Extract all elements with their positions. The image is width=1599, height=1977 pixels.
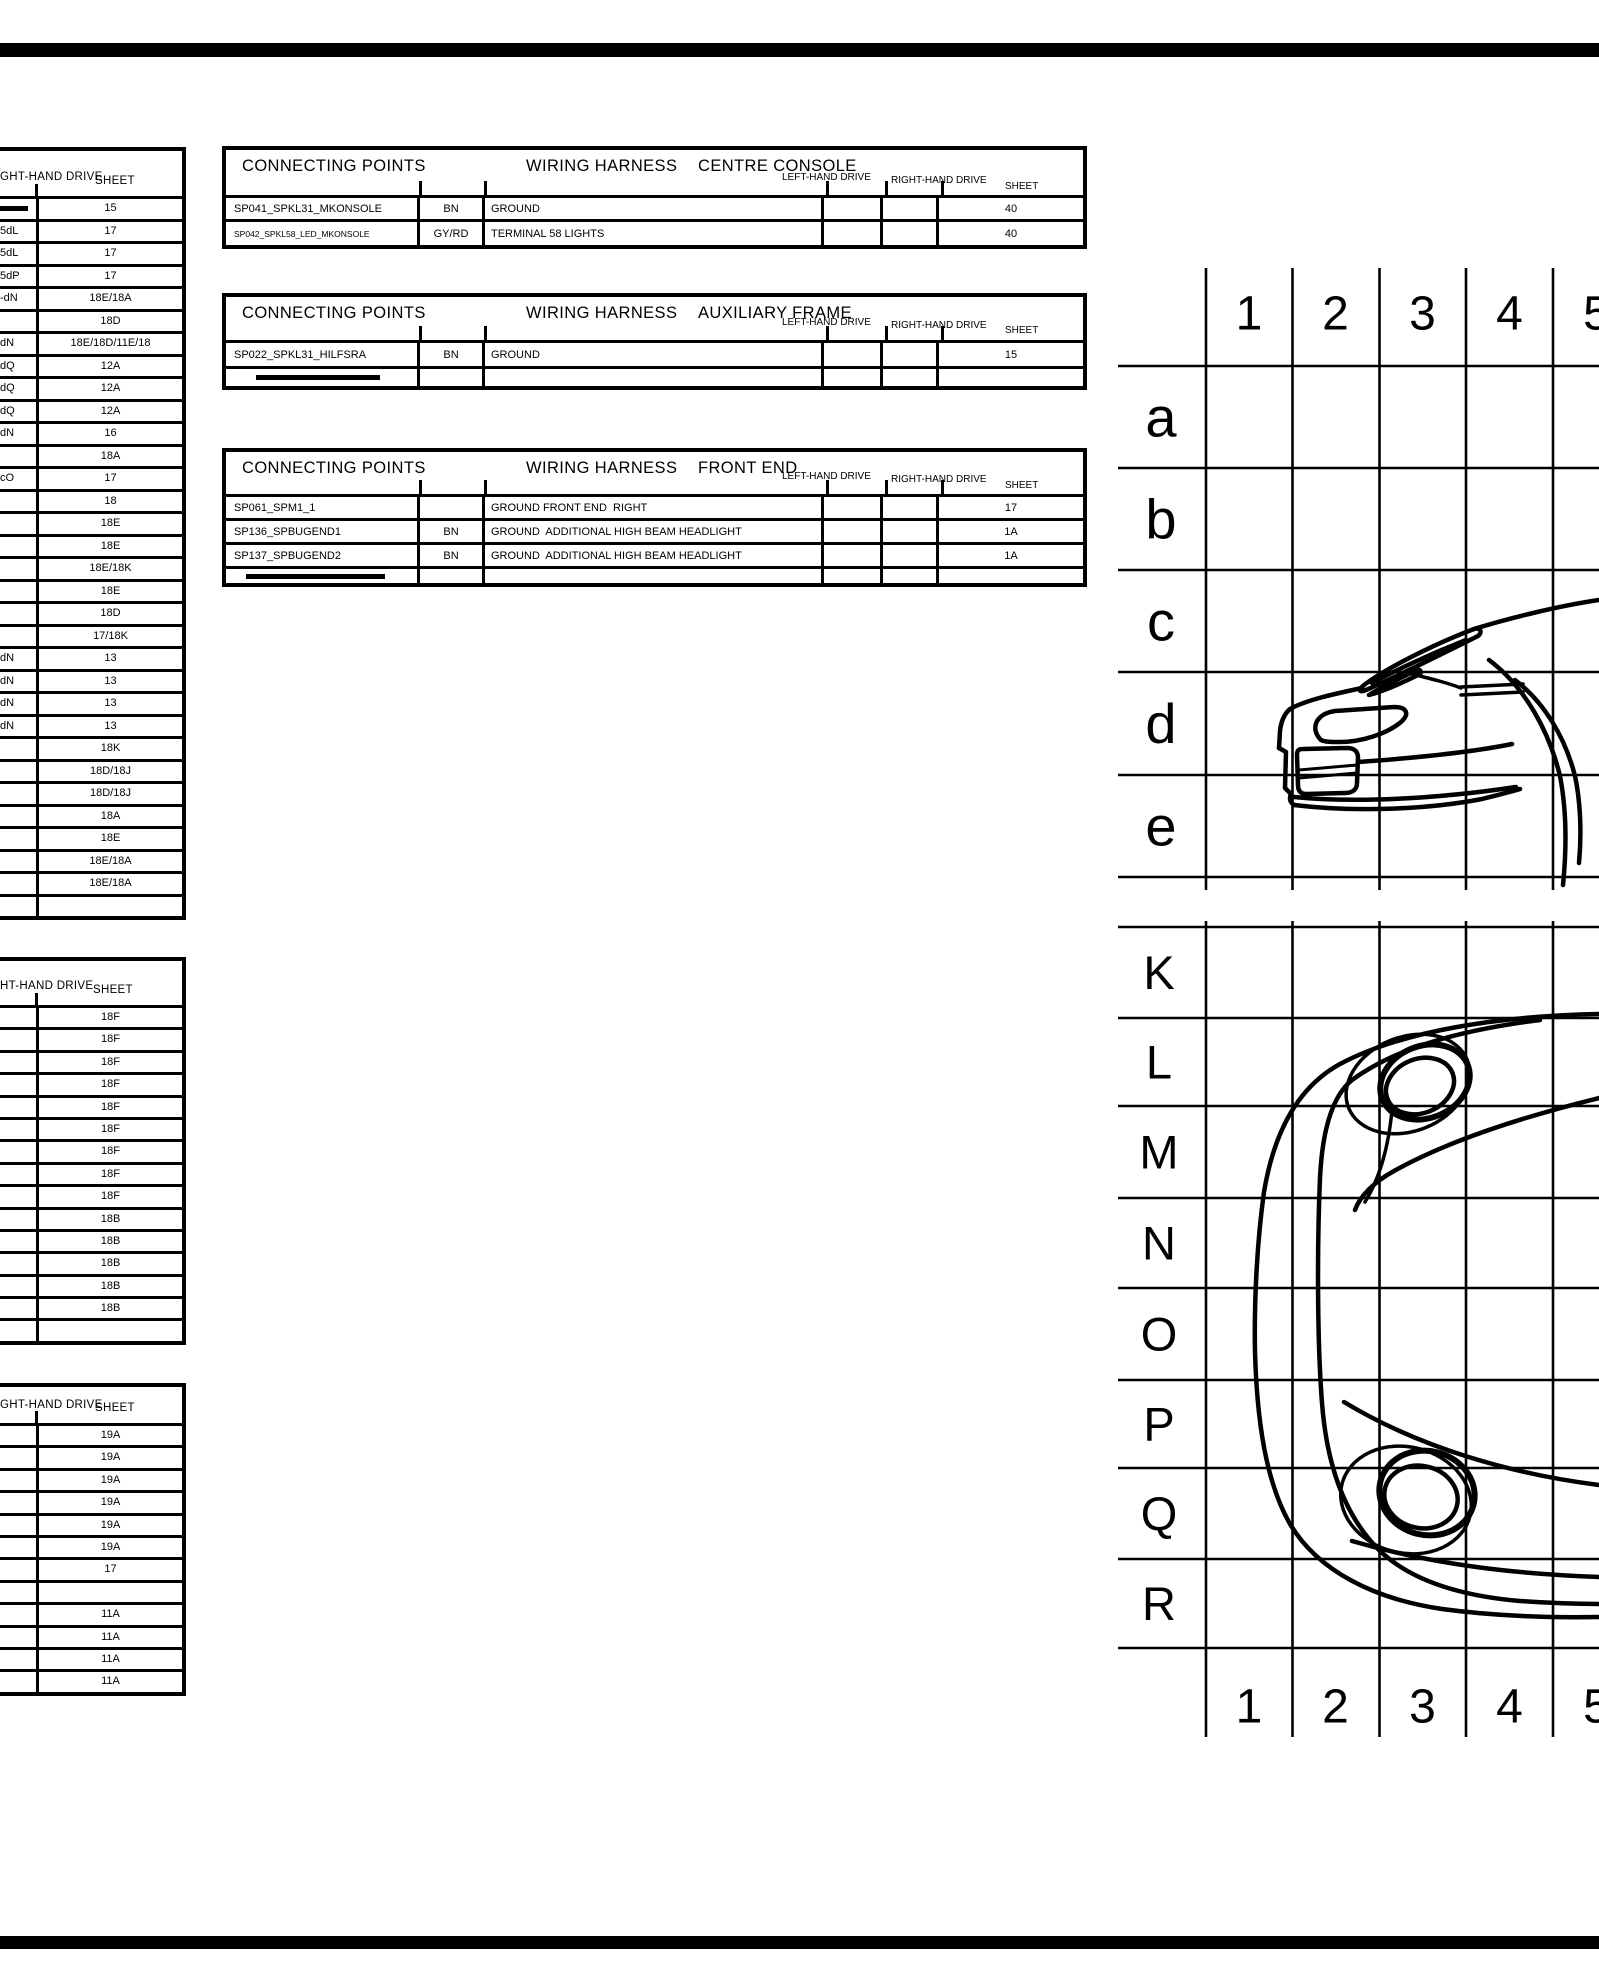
grid-row-label-upper: c [1147, 590, 1175, 653]
grid-column-label-top: 2 [1322, 288, 1349, 341]
car-front-view-drawing [1255, 1014, 1599, 1617]
grid-column-label-bottom: 1 [1236, 1681, 1263, 1734]
grid-row-label-upper: b [1145, 488, 1176, 551]
grid-row-label-lower: M [1139, 1126, 1178, 1179]
grid-row-label-lower: K [1143, 946, 1174, 999]
grid-row-label-lower: N [1142, 1217, 1176, 1270]
grid-column-label-bottom: 5 [1583, 1681, 1599, 1734]
grid-column-label-bottom: 4 [1496, 1681, 1523, 1734]
grid-column-label-top: 1 [1236, 288, 1263, 341]
grid-row-label-lower: R [1142, 1577, 1176, 1630]
grid-row-label-lower: O [1141, 1308, 1178, 1361]
grid-row-label-upper: a [1145, 386, 1177, 449]
grid-column-label-bottom: 3 [1409, 1681, 1436, 1734]
grid-row-label-lower: Q [1141, 1487, 1178, 1540]
grid-column-label-top: 4 [1496, 288, 1523, 341]
coordinate-grid: 1122334455abcdeKLMNOPQR [0, 0, 1599, 1977]
grid-row-label-lower: L [1146, 1036, 1172, 1089]
grid-row-label-lower: P [1143, 1398, 1174, 1451]
grid-column-label-bottom: 2 [1322, 1681, 1349, 1734]
grid-column-label-top: 3 [1409, 288, 1436, 341]
grid-row-label-upper: e [1145, 795, 1176, 858]
upper-grid-lines [1118, 268, 1599, 890]
upper-headlight-recess [1331, 1016, 1485, 1151]
grid-labels: 1122334455abcdeKLMNOPQR [1139, 288, 1599, 1734]
grid-row-label-upper: d [1145, 692, 1176, 755]
grid-column-label-top: 5 [1583, 288, 1599, 341]
lower-headlight-inner-ring [1378, 1458, 1465, 1536]
car-side-view-drawing [1279, 600, 1599, 885]
wiring-diagram-page: GHT-HAND DRIVESHEET155dL175dL175dP17-dN1… [0, 0, 1599, 1977]
